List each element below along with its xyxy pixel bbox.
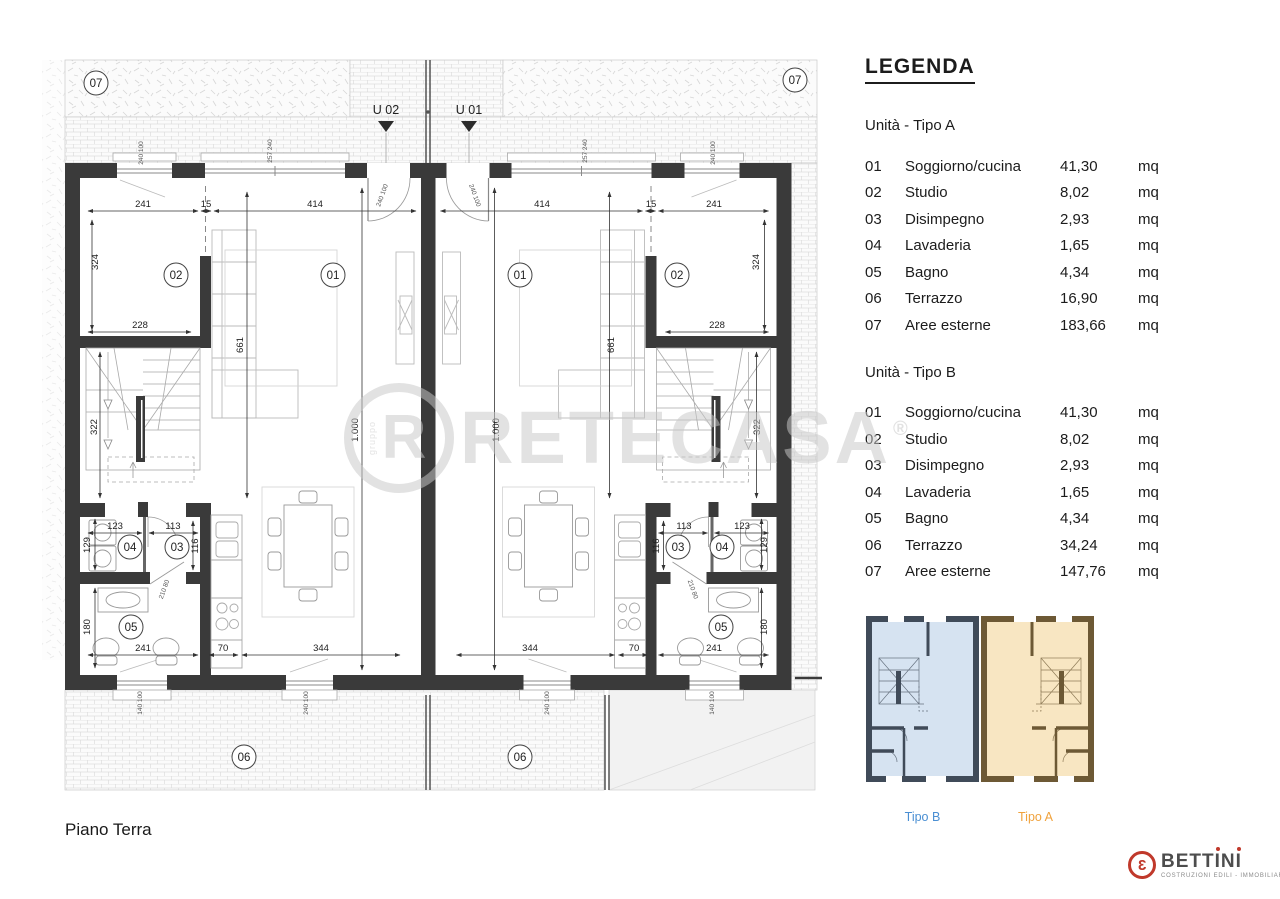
svg-text:123: 123 (107, 521, 123, 532)
legend-row: 02 Studio 8,02 mq (865, 426, 1185, 453)
room-number: 07 (865, 563, 905, 580)
room-unit: mq (1138, 290, 1178, 307)
svg-text:123: 123 (734, 521, 750, 532)
legend-row: 01 Soggiorno/cucina 41,30 mq (865, 153, 1185, 180)
svg-text:02: 02 (671, 270, 684, 282)
room-number: 03 (865, 211, 905, 228)
room-area: 4,34 (1060, 510, 1138, 527)
room-number: 01 (865, 404, 905, 421)
tipo-a-table: 01 Soggiorno/cucina 41,30 mq 02 Studio 8… (865, 153, 1185, 339)
thumbnail-plans (866, 616, 1094, 784)
floorplan-page: U 02 U 01 241 15 414 324 228 661 1.000 3… (0, 0, 1280, 899)
room-unit: mq (1138, 264, 1178, 281)
svg-text:414: 414 (534, 199, 550, 210)
svg-text:240 100: 240 100 (544, 691, 551, 715)
room-unit: mq (1138, 211, 1178, 228)
svg-text:05: 05 (715, 622, 728, 634)
room-area: 183,66 (1060, 317, 1138, 334)
unit-u01-label: U 01 (456, 103, 482, 117)
svg-text:15: 15 (201, 199, 212, 210)
room-name: Disimpegno (905, 211, 1060, 228)
svg-text:414: 414 (307, 199, 323, 210)
legend-row: 07 Aree esterne 147,76 mq (865, 559, 1185, 586)
tipo-b-table: 01 Soggiorno/cucina 41,30 mq 02 Studio 8… (865, 400, 1185, 586)
room-area: 4,34 (1060, 264, 1138, 281)
svg-text:140 100: 140 100 (137, 691, 144, 715)
legend-title: LEGENDA (865, 55, 975, 84)
legend-row: 02 Studio 8,02 mq (865, 180, 1185, 207)
room-area: 8,02 (1060, 184, 1138, 201)
room-name: Terrazzo (905, 290, 1060, 307)
room-unit: mq (1138, 510, 1178, 527)
room-name: Soggiorno/cucina (905, 158, 1060, 175)
svg-text:01: 01 (327, 270, 340, 282)
room-name: Lavaderia (905, 484, 1060, 501)
svg-text:322: 322 (89, 419, 100, 435)
room-name: Lavaderia (905, 237, 1060, 254)
svg-text:228: 228 (132, 320, 148, 331)
room-area: 2,93 (1060, 211, 1138, 228)
tipo-b-label: Tipo B (866, 810, 979, 824)
svg-text:241: 241 (706, 199, 722, 210)
svg-text:1.000: 1.000 (350, 418, 361, 442)
unit-type-thumbnails: Tipo B Tipo A (866, 616, 1094, 824)
room-unit: mq (1138, 457, 1178, 474)
room-unit: mq (1138, 537, 1178, 554)
svg-text:129: 129 (759, 537, 770, 553)
bettini-subtitle: COSTRUZIONI EDILI - IMMOBILIARE (1161, 873, 1280, 879)
legend-row: 05 Bagno 4,34 mq (865, 259, 1185, 286)
svg-text:1.000: 1.000 (491, 418, 502, 442)
svg-text:661: 661 (606, 337, 617, 353)
room-unit: mq (1138, 317, 1178, 334)
svg-text:129: 129 (82, 537, 93, 553)
svg-text:70: 70 (218, 643, 229, 654)
svg-text:240 100: 240 100 (303, 691, 310, 715)
room-name: Bagno (905, 510, 1060, 527)
room-area: 1,65 (1060, 484, 1138, 501)
svg-text:02: 02 (170, 270, 183, 282)
tipo-b-heading: Unità - Tipo B (865, 364, 1185, 381)
svg-text:03: 03 (171, 542, 184, 554)
room-unit: mq (1138, 431, 1178, 448)
floor-plan: U 02 U 01 241 15 414 324 228 661 1.000 3… (0, 0, 830, 899)
svg-text:04: 04 (716, 542, 729, 554)
legend-panel: LEGENDA Unità - Tipo A 01 Soggiorno/cuci… (865, 55, 1185, 585)
tipo-a-heading: Unità - Tipo A (865, 117, 1185, 134)
thumbnail-tipo-b (869, 616, 977, 782)
svg-text:240 100: 240 100 (138, 141, 145, 165)
svg-text:116: 116 (651, 538, 662, 553)
room-name: Studio (905, 431, 1060, 448)
room-name: Terrazzo (905, 537, 1060, 554)
svg-text:06: 06 (238, 752, 251, 764)
room-name: Disimpegno (905, 457, 1060, 474)
room-number: 01 (865, 158, 905, 175)
svg-text:661: 661 (235, 337, 246, 353)
legend-row: 04 Lavaderia 1,65 mq (865, 233, 1185, 260)
svg-text:324: 324 (751, 254, 762, 270)
svg-text:04: 04 (124, 542, 137, 554)
room-number: 06 (865, 290, 905, 307)
svg-text:01: 01 (514, 270, 527, 282)
room-unit: mq (1138, 158, 1178, 175)
room-unit: mq (1138, 237, 1178, 254)
room-area: 8,02 (1060, 431, 1138, 448)
room-area: 41,30 (1060, 158, 1138, 175)
svg-text:324: 324 (90, 254, 101, 270)
svg-text:07: 07 (789, 75, 802, 87)
svg-text:15: 15 (646, 199, 657, 210)
legend-row: 06 Terrazzo 16,90 mq (865, 286, 1185, 313)
svg-text:180: 180 (82, 619, 93, 635)
svg-text:241: 241 (135, 199, 151, 210)
room-area: 16,90 (1060, 290, 1138, 307)
svg-text:03: 03 (672, 542, 685, 554)
svg-text:322: 322 (752, 419, 763, 435)
svg-text:228: 228 (709, 320, 725, 331)
legend-row: 04 Lavaderia 1,65 mq (865, 479, 1185, 506)
svg-text:05: 05 (125, 622, 138, 634)
unit-u02-label: U 02 (373, 103, 399, 117)
svg-text:70: 70 (629, 643, 640, 654)
floor-title: Piano Terra (65, 820, 152, 839)
room-number: 03 (865, 457, 905, 474)
svg-text:257 240: 257 240 (267, 139, 274, 163)
bettini-emblem-icon: 3 (1128, 851, 1156, 879)
svg-text:06: 06 (514, 752, 527, 764)
room-name: Aree esterne (905, 317, 1060, 334)
svg-text:344: 344 (313, 643, 329, 654)
room-unit: mq (1138, 563, 1178, 580)
svg-text:07: 07 (90, 78, 103, 90)
room-number: 07 (865, 317, 905, 334)
thumbnail-tipo-a (983, 616, 1091, 782)
room-unit: mq (1138, 404, 1178, 421)
tipo-a-label: Tipo A (979, 810, 1092, 824)
room-unit: mq (1138, 484, 1178, 501)
room-area: 147,76 (1060, 563, 1138, 580)
svg-text:180: 180 (759, 619, 770, 635)
legend-row: 01 Soggiorno/cucina 41,30 mq (865, 400, 1185, 427)
legend-row: 03 Disimpegno 2,93 mq (865, 453, 1185, 480)
room-area: 1,65 (1060, 237, 1138, 254)
svg-text:140 100: 140 100 (709, 691, 716, 715)
room-number: 02 (865, 184, 905, 201)
room-number: 02 (865, 431, 905, 448)
svg-text:116: 116 (190, 538, 201, 553)
room-name: Bagno (905, 264, 1060, 281)
room-area: 41,30 (1060, 404, 1138, 421)
svg-text:344: 344 (522, 643, 538, 654)
legend-row: 03 Disimpegno 2,93 mq (865, 206, 1185, 233)
room-number: 05 (865, 264, 905, 281)
svg-text:113: 113 (676, 521, 691, 532)
room-name: Aree esterne (905, 563, 1060, 580)
legend-row: 07 Aree esterne 183,66 mq (865, 312, 1185, 339)
svg-text:113: 113 (165, 521, 180, 532)
svg-text:240 100: 240 100 (710, 141, 717, 165)
svg-text:241: 241 (706, 643, 722, 654)
room-area: 2,93 (1060, 457, 1138, 474)
svg-text:257 240: 257 240 (582, 139, 589, 163)
room-number: 05 (865, 510, 905, 527)
room-name: Studio (905, 184, 1060, 201)
room-unit: mq (1138, 184, 1178, 201)
legend-row: 05 Bagno 4,34 mq (865, 506, 1185, 533)
svg-text:241: 241 (135, 643, 151, 654)
room-name: Soggiorno/cucina (905, 404, 1060, 421)
bettini-logo: 3 BETTINI COSTRUZIONI EDILI - IMMOBILIAR… (1128, 851, 1280, 879)
room-number: 04 (865, 484, 905, 501)
room-number: 06 (865, 537, 905, 554)
bettini-wordmark: BETTINI (1161, 852, 1280, 871)
room-area: 34,24 (1060, 537, 1138, 554)
legend-row: 06 Terrazzo 34,24 mq (865, 532, 1185, 559)
room-number: 04 (865, 237, 905, 254)
